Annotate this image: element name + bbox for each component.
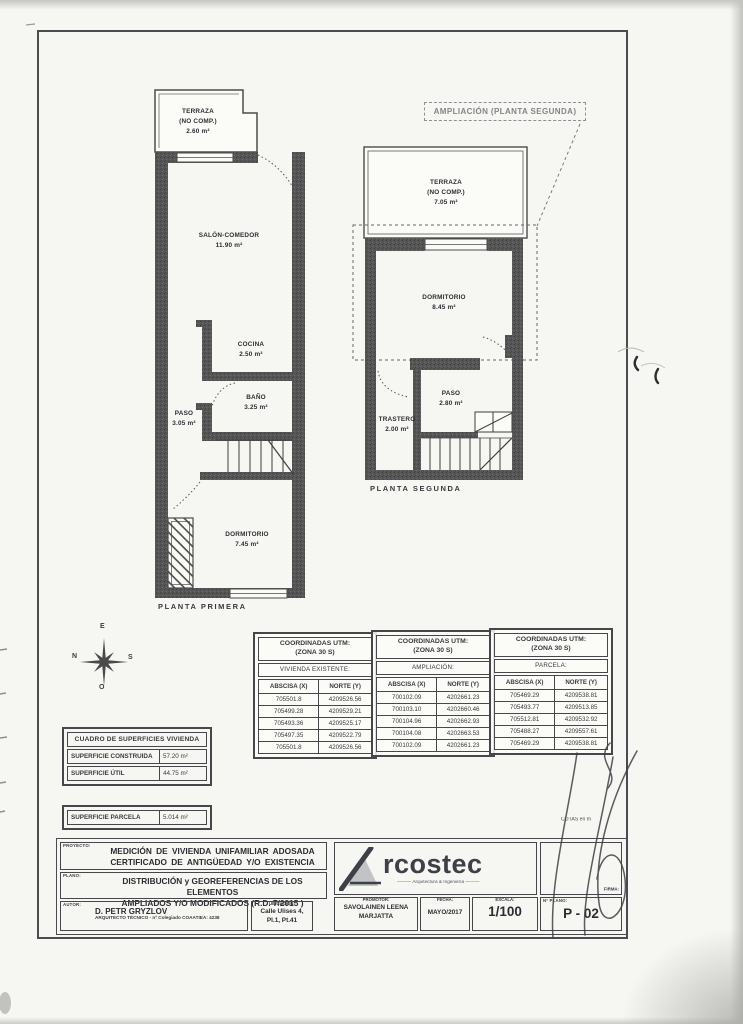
table-cell: 4209526.56 <box>319 741 372 753</box>
table-cell: 4209538.81 <box>555 737 608 749</box>
compass-letter-left: N <box>72 653 77 660</box>
table-cell: 705512.81 <box>495 713 555 725</box>
closet-symbol <box>168 518 193 588</box>
promotor-box: PROMOTOR: SAVOLAINEN LEENA MARJATTA <box>334 897 418 931</box>
plano-label: PLANO: <box>63 874 81 878</box>
table-row: 705501.84209526.56 <box>259 741 372 753</box>
plano-line1: DISTRIBUCIÓN y GEOREFERENCIAS DE LOS ELE… <box>99 876 326 898</box>
table-cell: 705499.28 <box>259 705 319 717</box>
fecha-value: MAYO/2017 <box>421 909 469 918</box>
table-cell: 4202661.23 <box>437 739 490 751</box>
table-cell: 700104.08 <box>377 727 437 739</box>
coord-table-grid: ABSCISA (X) NORTE (Y) 705501.84209526.56… <box>258 679 372 754</box>
surface-row-util: SUPERFICIE ÚTIL 44.75 m² <box>67 766 207 781</box>
col-header-abscisa: ABSCISA (X) <box>377 677 437 691</box>
room-label-salon: SALÓN-COMEDOR 11.90 m² <box>199 231 259 251</box>
scanned-floorplan-sheet: TERRAZA (NO COMP.) 2.60 m² SALÓN-COMEDOR… <box>0 0 743 1024</box>
room-label-dormitorio1: DORMITORIO 7.45 m² <box>225 530 268 550</box>
ubicacion-label: UBICACIÓN: <box>260 902 303 906</box>
stairs2 <box>421 412 512 470</box>
compass-letter-right: S <box>128 654 133 661</box>
table-cell: 4209538.81 <box>555 689 608 701</box>
parcel-surface-table: SUPERFICIE PARCELA 5.014 m² <box>62 805 212 830</box>
table-cell: 4202663.53 <box>437 727 490 739</box>
escala-box: ESCALA: 1/100 <box>472 897 538 931</box>
table-cell: 4209525.17 <box>319 717 372 729</box>
coord-table-title: COORDINADAS UTM: (ZONA 30 S) <box>258 637 372 661</box>
col-header-norte: NORTE (Y) <box>319 679 372 693</box>
table-row: 705501.84209526.56 <box>259 693 372 705</box>
table-row: 700104.084202663.53 <box>377 727 490 739</box>
table-cell: 4209526.56 <box>319 693 372 705</box>
compass-letter-top: E <box>100 623 105 630</box>
table-cell: 4202660.46 <box>437 703 490 715</box>
table-row: 705512.814209532.92 <box>495 713 608 725</box>
coord-table-subtitle: VIVIENDA EXISTENTE: <box>258 663 372 677</box>
table-cell: 705493.36 <box>259 717 319 729</box>
proyecto-line1: MEDICIÓN DE VIVIENDA UNIFAMILIAR ADOSADA <box>99 846 326 857</box>
table-cell: 700104.96 <box>377 715 437 727</box>
terrace-door-symbol <box>425 239 487 250</box>
proyecto-label: PROYECTO: <box>63 844 91 848</box>
table-row: 705469.294209538.81 <box>495 737 608 749</box>
fecha-label: FECHA: <box>428 898 463 902</box>
plan-segunda-caption: PLANTA SEGUNDA <box>370 484 462 493</box>
table-row: 705499.284209529.21 <box>259 705 372 717</box>
table-row: 705493.774209513.85 <box>495 701 608 713</box>
proyecto-line2: CERTIFICADO DE ANTIGÜEDAD Y/O EXISTENCIA <box>99 857 326 868</box>
cotas-note: COTAS en m <box>561 817 591 822</box>
escala-value: 1/100 <box>473 904 537 919</box>
table-cell: 4209532.92 <box>555 713 608 725</box>
promotor-line1: SAVOLAINEN LEENA <box>335 904 417 913</box>
coord-table-ampliacion: COORDINADAS UTM: (ZONA 30 S) AMPLIACIÓN:… <box>371 630 495 757</box>
coord-table-title: COORDINADAS UTM: (ZONA 30 S) <box>494 633 608 657</box>
room-label-terraza1: TERRAZA (NO COMP.) 2.60 m² <box>179 107 217 137</box>
table-row: 705497.354209522.79 <box>259 729 372 741</box>
table-cell: 4209529.21 <box>319 705 372 717</box>
arcostec-logo-tagline: ——— Arquitectura & Ingeniería ——— <box>397 880 479 885</box>
coord-table-subtitle: AMPLIACIÓN: <box>376 661 490 675</box>
table-row: 700102.094202661.23 <box>377 739 490 751</box>
plan-segunda-drawing <box>350 100 595 500</box>
compass-letter-bottom: O <box>99 684 104 691</box>
autor-name: D. PETR GRYZLOV <box>95 907 247 916</box>
table-cell: 4202661.23 <box>437 691 490 703</box>
surface-row-construida: SUPERFICIE CONSTRUIDA 57.20 m² <box>67 749 207 764</box>
nplano-box: Nº PLANO: P - 02 <box>540 897 622 931</box>
table-cell: 705497.35 <box>259 729 319 741</box>
scan-edge-right <box>730 0 743 1024</box>
promotor-label: PROMOTOR: <box>346 898 405 902</box>
logo-box: rcostec ——— Arquitectura & Ingeniería ——… <box>334 842 537 895</box>
table-cell: 705469.29 <box>495 689 555 701</box>
annotation-leader-line <box>537 124 580 226</box>
table-row: 705488.274209557.61 <box>495 725 608 737</box>
surface-table-title: CUADRO DE SUPERFICIES VIVIENDA <box>67 732 207 747</box>
plano-box: PLANO: DISTRIBUCIÓN y GEOREFERENCIAS DE … <box>60 872 327 899</box>
autor-detail: ARQUITECTO TÉCNICO - nº Colegiado COAATI… <box>95 916 214 921</box>
escala-label: ESCALA: <box>482 898 528 902</box>
coord-table-parcela: COORDINADAS UTM: (ZONA 30 S) PARCELA: AB… <box>489 628 613 755</box>
door-arcs <box>173 155 294 509</box>
compass-rose: E N S O <box>68 622 140 700</box>
table-cell: 705493.77 <box>495 701 555 713</box>
col-header-abscisa: ABSCISA (X) <box>259 679 319 693</box>
promotor-line2: MARJATTA <box>335 913 417 922</box>
coord-table-vivienda: COORDINADAS UTM: (ZONA 30 S) VIVIENDA EX… <box>253 632 377 759</box>
arcostec-logo-mark-icon <box>339 847 383 891</box>
fecha-box: FECHA: MAYO/2017 <box>420 897 470 931</box>
table-row: 705469.294209538.81 <box>495 689 608 701</box>
table-row: 700104.964202662.93 <box>377 715 490 727</box>
surface-table: CUADRO DE SUPERFICIES VIVIENDA SUPERFICI… <box>62 727 212 786</box>
room-label-cocina: COCINA 2.50 m² <box>238 340 264 360</box>
col-header-norte: NORTE (Y) <box>555 675 608 689</box>
table-row: 700102.094202661.23 <box>377 691 490 703</box>
ubicacion-box: UBICACIÓN: Calle Ulises 4, Pl.1, Pt.41 <box>251 901 313 931</box>
coord-table-subtitle: PARCELA: <box>494 659 608 673</box>
room-label-trastero: TRASTERO 2.00 m² <box>379 415 416 435</box>
coord-table-title: COORDINADAS UTM: (ZONA 30 S) <box>376 635 490 659</box>
coord-table-grid: ABSCISA (X) NORTE (Y) 705469.294209538.8… <box>494 675 608 750</box>
table-row: 700103.104202660.46 <box>377 703 490 715</box>
arcostec-logo-text: rcostec <box>383 849 483 880</box>
scan-edge-top <box>0 0 743 10</box>
table-cell: 705501.8 <box>259 741 319 753</box>
col-header-abscisa: ABSCISA (X) <box>495 675 555 689</box>
room-label-dormitorio2: DORMITORIO 8.45 m² <box>422 293 465 313</box>
col-header-norte: NORTE (Y) <box>437 677 490 691</box>
room-label-terraza2: TERRAZA (NO COMP.) 7.05 m² <box>427 178 465 208</box>
table-cell: 705469.29 <box>495 737 555 749</box>
table-cell: 705488.27 <box>495 725 555 737</box>
coord-table-grid: ABSCISA (X) NORTE (Y) 700102.094202661.2… <box>376 677 490 752</box>
firma-label: FIRMA: <box>604 888 619 892</box>
ubicacion-line1: Calle Ulises 4, <box>252 908 312 917</box>
table-cell: 700102.09 <box>377 739 437 751</box>
table-cell: 4209513.85 <box>555 701 608 713</box>
table-cell: 700102.09 <box>377 691 437 703</box>
table-cell: 4209557.61 <box>555 725 608 737</box>
nplano-value: P - 02 <box>541 906 621 921</box>
table-cell: 700103.10 <box>377 703 437 715</box>
plan-primera-caption: PLANTA PRIMERA <box>158 602 247 611</box>
autor-box: AUTOR: D. PETR GRYZLOV ARQUITECTO TÉCNIC… <box>60 901 248 931</box>
plan2-walls <box>365 238 523 480</box>
table-cell: 4209522.79 <box>319 729 372 741</box>
nplano-label: Nº PLANO: <box>543 899 567 903</box>
parcel-row: SUPERFICIE PARCELA 5.014 m² <box>67 810 207 825</box>
table-cell: 4202662.93 <box>437 715 490 727</box>
room-label-paso1: PASO 3.05 m² <box>172 409 195 429</box>
room-label-bano: BAÑO 3.25 m² <box>244 393 267 413</box>
autor-label: AUTOR: <box>63 903 81 907</box>
table-cell: 705501.8 <box>259 693 319 705</box>
firma-box: FIRMA: <box>540 842 622 895</box>
title-block: PROYECTO: MEDICIÓN DE VIVIENDA UNIFAMILI… <box>56 838 628 935</box>
room-label-paso2: PASO 2.80 m² <box>439 389 462 409</box>
stairs1 <box>215 440 294 475</box>
scan-shadow-corner <box>623 929 743 1024</box>
table-row: 705493.364209525.17 <box>259 717 372 729</box>
proyecto-box: PROYECTO: MEDICIÓN DE VIVIENDA UNIFAMILI… <box>60 842 327 870</box>
ubicacion-line2: Pl.1, Pt.41 <box>252 917 312 926</box>
